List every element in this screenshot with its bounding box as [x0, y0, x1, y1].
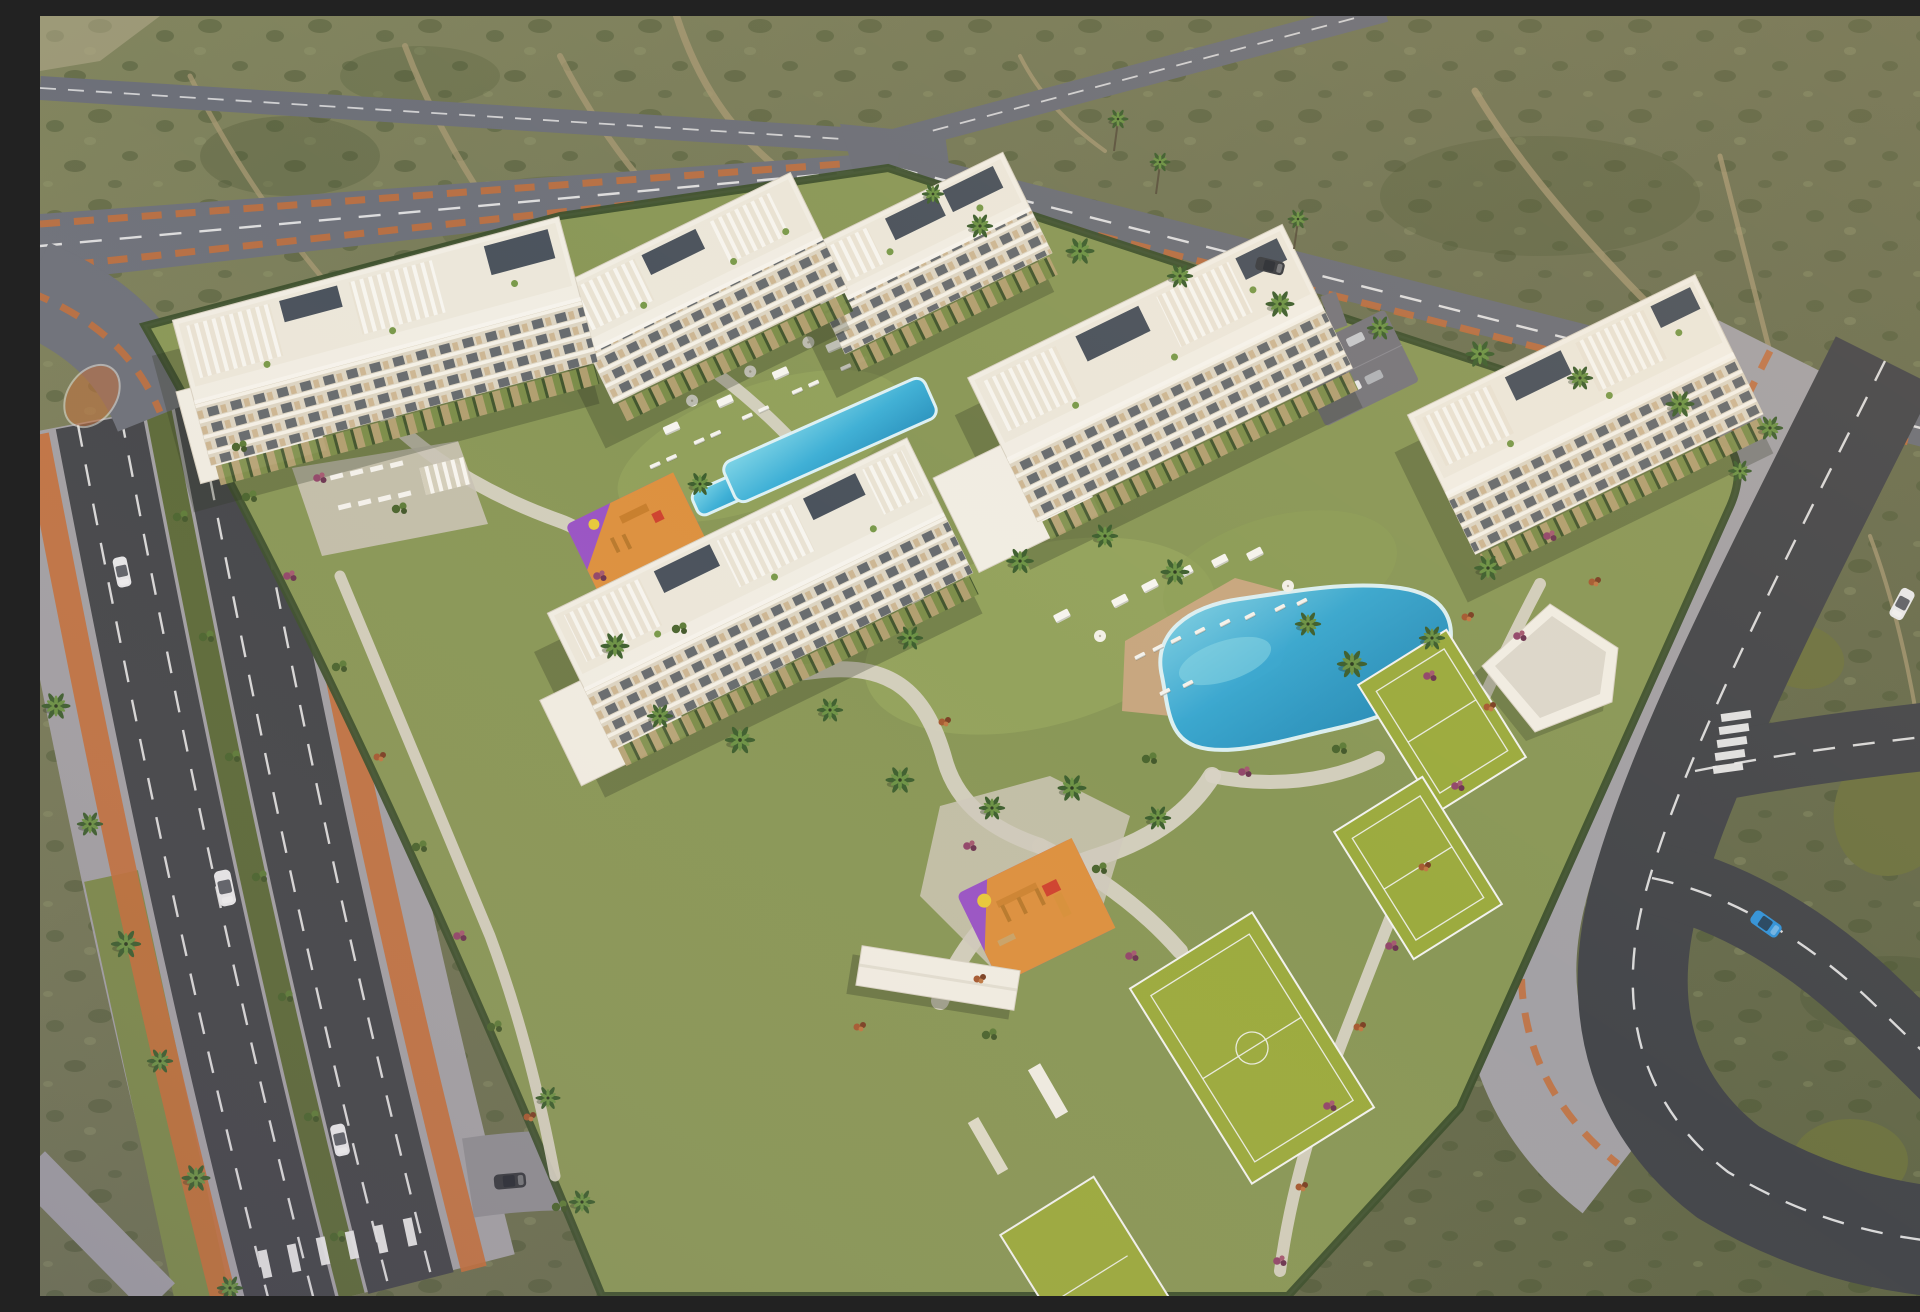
- car-dark-access-road: [493, 1172, 526, 1190]
- render-canvas: [40, 16, 1920, 1296]
- aerial-render: [40, 16, 1920, 1296]
